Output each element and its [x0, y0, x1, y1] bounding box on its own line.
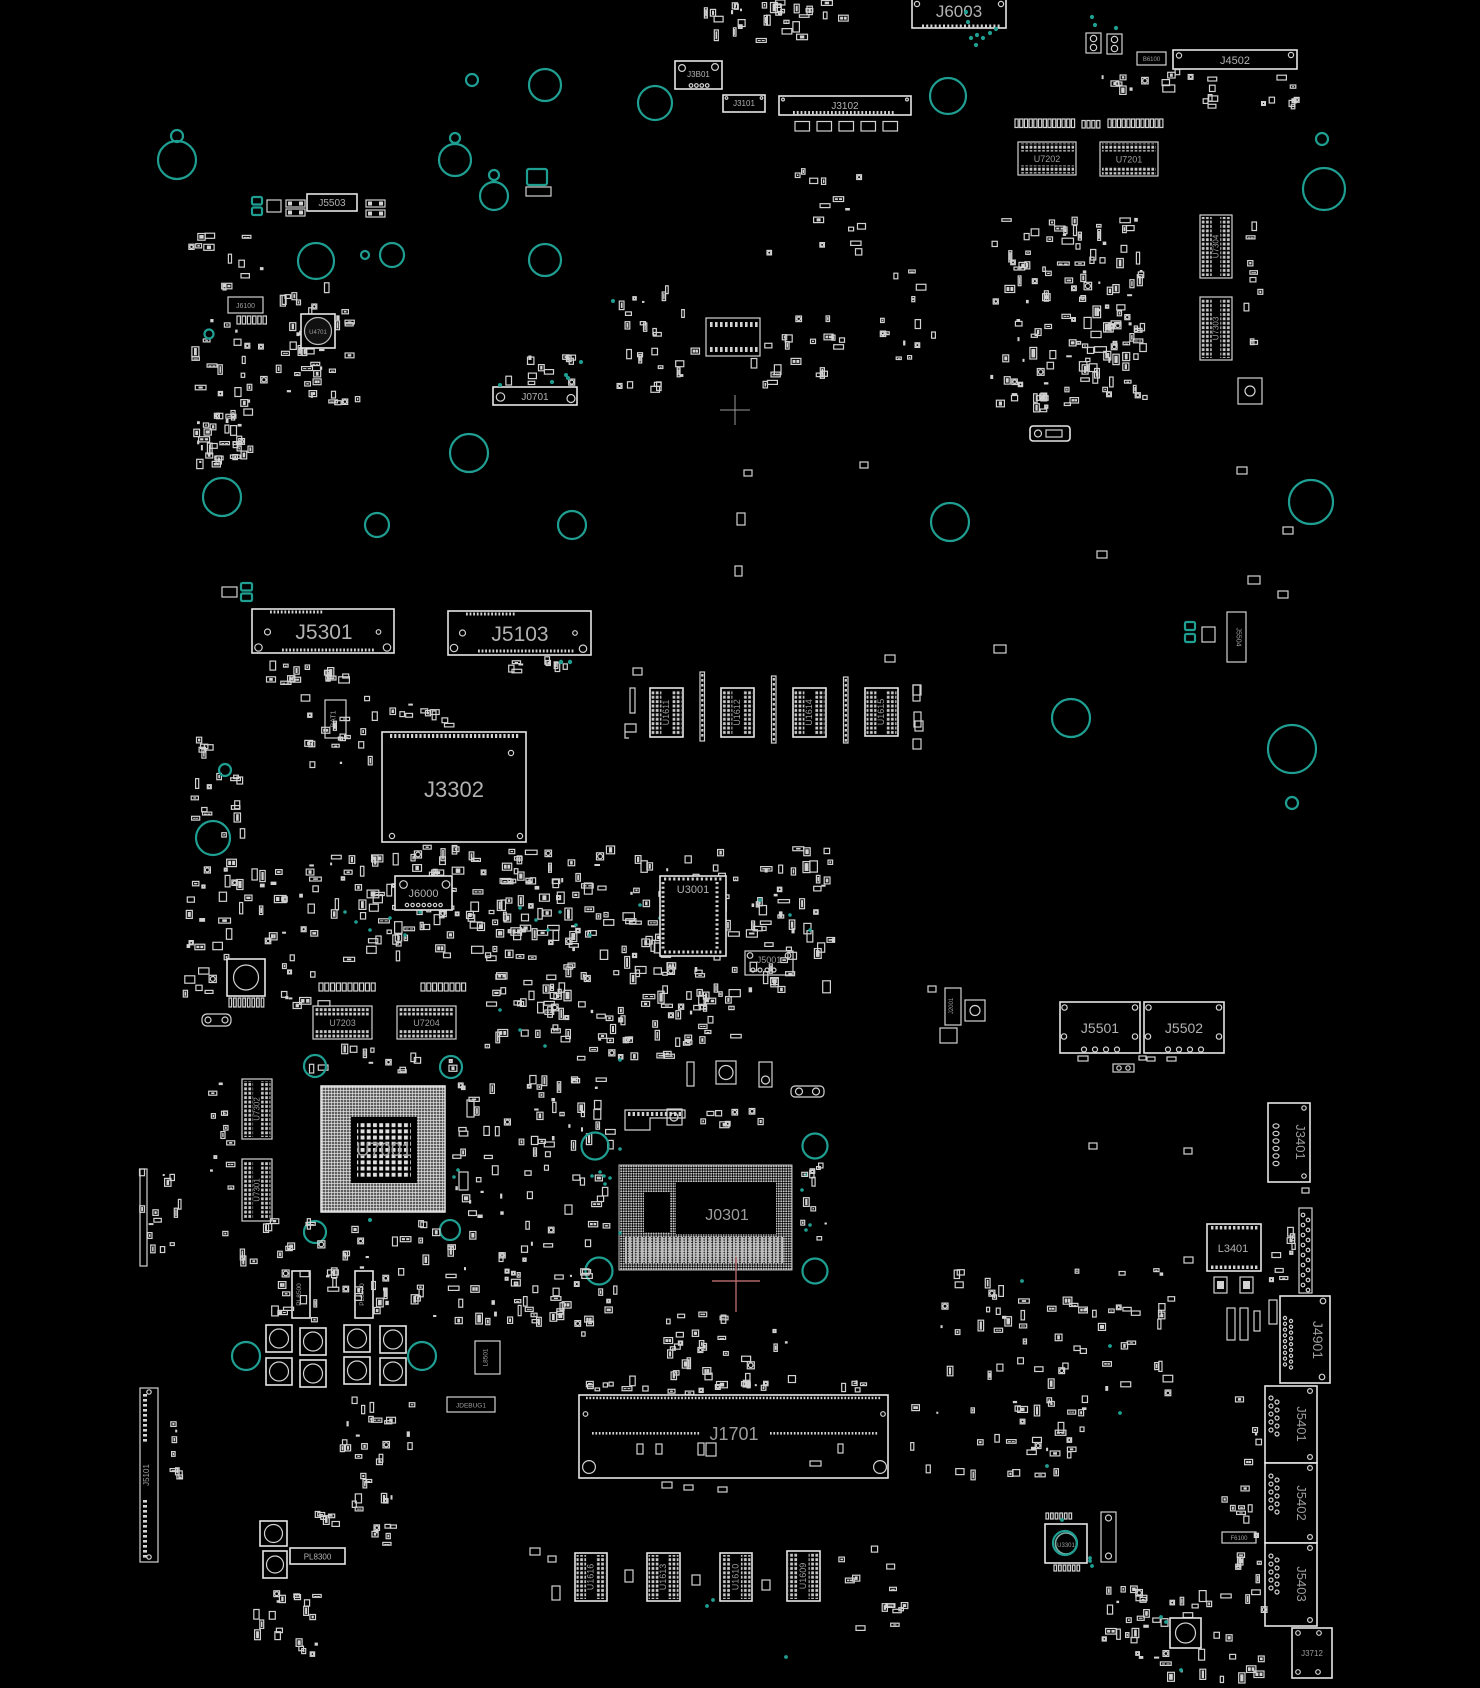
svg-text:J5001: J5001: [757, 955, 782, 965]
svg-text:J5501: J5501: [1081, 1020, 1119, 1036]
svg-text:U1611: U1611: [661, 700, 671, 726]
svg-text:U1615: U1615: [876, 699, 886, 726]
svg-text:JDEBUG1: JDEBUG1: [456, 1403, 486, 1410]
svg-text:U3301: U3301: [1057, 1543, 1075, 1549]
svg-text:F6100: F6100: [1230, 1536, 1248, 1542]
svg-text:J5401: J5401: [1294, 1406, 1309, 1441]
svg-text:PL8500: PL8500: [296, 1283, 303, 1306]
svg-text:U1613: U1613: [658, 1564, 668, 1591]
svg-text:U1612: U1612: [732, 699, 742, 726]
svg-text:U7301: U7301: [253, 1178, 262, 1202]
svg-text:U1610: U1610: [731, 1564, 741, 1591]
svg-text:J4901: J4901: [1310, 1321, 1326, 1359]
svg-text:J3102: J3102: [831, 101, 859, 112]
svg-text:U7302: U7302: [253, 1097, 262, 1121]
svg-text:J5502: J5502: [1165, 1020, 1203, 1036]
svg-text:J3712: J3712: [1301, 1649, 1323, 1658]
svg-text:L8501: L8501: [483, 1348, 490, 1366]
svg-text:J6100: J6100: [236, 303, 255, 310]
svg-text:U7202: U7202: [1034, 154, 1061, 164]
svg-text:U4701: U4701: [309, 330, 327, 336]
svg-text:U1614: U1614: [804, 699, 814, 726]
svg-text:J5504: J5504: [1235, 627, 1242, 646]
svg-text:U7304: U7304: [1212, 234, 1221, 258]
svg-text:J4502: J4502: [1220, 55, 1250, 67]
svg-text:J3101: J3101: [733, 99, 755, 108]
svg-text:J5503: J5503: [318, 198, 346, 209]
svg-text:U3001: U3001: [677, 884, 709, 896]
svg-text:J0701: J0701: [521, 392, 549, 403]
svg-text:U1609: U1609: [798, 1563, 808, 1590]
svg-text:J2001: J2001: [949, 997, 955, 1014]
svg-text:U7201: U7201: [1116, 155, 1143, 165]
svg-text:U7204: U7204: [413, 1018, 440, 1028]
svg-text:J6003: J6003: [936, 2, 982, 21]
svg-text:J5101: J5101: [142, 1464, 151, 1486]
svg-text:J5103: J5103: [491, 623, 548, 646]
svg-text:J3302: J3302: [424, 777, 484, 802]
svg-text:J3B01: J3B01: [687, 70, 710, 79]
svg-text:B6100: B6100: [1143, 57, 1161, 63]
svg-text:J5301: J5301: [295, 621, 352, 644]
svg-text:U1616: U1616: [586, 1564, 596, 1591]
svg-text:J5403: J5403: [1294, 1566, 1309, 1601]
svg-text:PL8300: PL8300: [304, 1553, 332, 1562]
svg-text:U7303: U7303: [1212, 316, 1221, 340]
svg-text:U7001: U7001: [356, 1140, 412, 1161]
svg-text:J1701: J1701: [709, 1424, 758, 1444]
svg-text:J6000: J6000: [409, 888, 439, 900]
svg-text:U7203: U7203: [329, 1018, 356, 1028]
svg-text:J3401: J3401: [1293, 1124, 1308, 1159]
svg-text:J0301: J0301: [705, 1207, 749, 1224]
svg-text:L3401: L3401: [1218, 1243, 1249, 1255]
svg-text:J5402: J5402: [1294, 1485, 1309, 1520]
